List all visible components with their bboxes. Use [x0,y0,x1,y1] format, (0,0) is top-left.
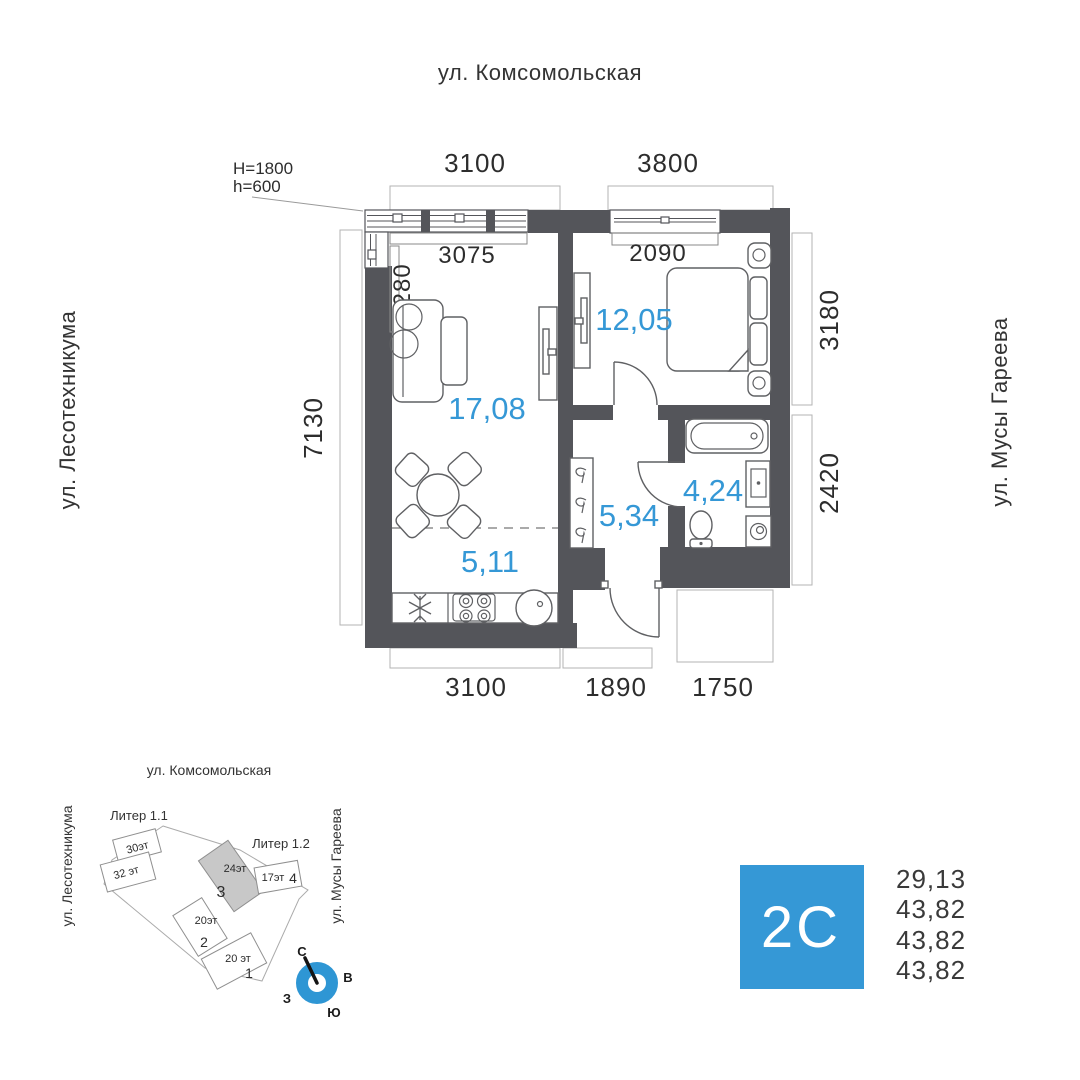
area-hall: 5,34 [599,498,659,533]
dim-bedroom-width: 2090 [629,240,686,267]
kitchen-sink [516,590,552,626]
dim-bottom-right: 1750 [692,672,754,702]
area-bath: 4,24 [683,473,743,508]
dim-right-top: 3180 [814,289,844,351]
tv-console-living [539,307,557,400]
dim-left: 7130 [298,397,328,459]
dim-top-left: 3100 [444,148,506,178]
toilet [690,511,712,548]
bathtub [686,419,768,453]
type-value-4: 43,82 [896,955,966,985]
street-left-label: ул. Лесотехникума [55,310,80,509]
compass-south-label: Ю [327,1005,340,1020]
street-right-label: ул. Мусы Гареева [987,317,1012,506]
bathroom-sink [746,461,770,507]
double-bed [667,268,767,371]
window-annotation-line1: H=1800 [233,159,293,178]
building-4-number: 4 [289,870,297,886]
building-1-number: 1 [245,965,253,981]
building-2-floors-label: 20эт [195,915,218,927]
minimap-liter1-label: Литер 1.1 [110,808,168,823]
building-3-number: 3 [217,884,226,901]
minimap-street-left: ул. Лесотехникума [59,805,75,926]
minimap-liter2-label: Литер 1.2 [252,836,310,851]
site-minimap: ул. Комсомольская ул. Лесотехникума ул. … [59,762,353,1020]
nightstand-bottom [748,371,771,396]
building-3-floors-label: 24эт [224,863,247,875]
street-top-label: ул. Комсомольская [438,60,642,85]
nightstand-top [748,243,771,268]
tv-panel-bedroom [574,273,590,368]
compass-west-label: З [283,991,291,1006]
bedroom-door [614,362,657,405]
entry-door [601,581,662,637]
floorplan-page: ул. Комсомольская ул. Лесотехникума ул. … [0,0,1080,1080]
compass-east-label: В [343,970,352,985]
building-4-floors-label: 17эт [262,872,285,884]
minimap-street-right: ул. Мусы Гареева [328,808,344,923]
building-1-floors-label: 20 эт [225,953,251,965]
washing-machine [746,516,771,547]
compass-north-label: С [297,944,307,959]
dim-living-width: 3075 [438,242,495,269]
area-bedroom: 12,05 [595,302,673,337]
annotation-leader-line [252,197,363,211]
dim-top-right: 3800 [637,148,699,178]
building-2-number: 2 [200,934,208,950]
type-code: 2C [761,895,841,960]
dining-table [393,450,484,541]
window-annotation-line2: h=600 [233,177,281,196]
type-value-2: 43,82 [896,894,966,924]
type-value-3: 43,82 [896,925,966,955]
sofa [393,300,467,402]
wardrobe [570,458,593,548]
area-kitchen: 5,11 [461,544,519,579]
type-value-1: 29,13 [896,864,966,894]
dim-right-bottom: 2420 [814,452,844,514]
dim-bottom-left: 3100 [445,672,507,702]
apartment-type-card: 2C 29,13 43,82 43,82 43,82 [740,864,966,989]
area-living: 17,08 [448,391,526,426]
compass: С В З Ю [283,944,353,1020]
floorplan-drawing: ул. Комсомольская ул. Лесотехникума ул. … [0,0,1080,1080]
dim-bottom-center: 1890 [585,672,647,702]
minimap-street-top: ул. Комсомольская [147,762,272,778]
